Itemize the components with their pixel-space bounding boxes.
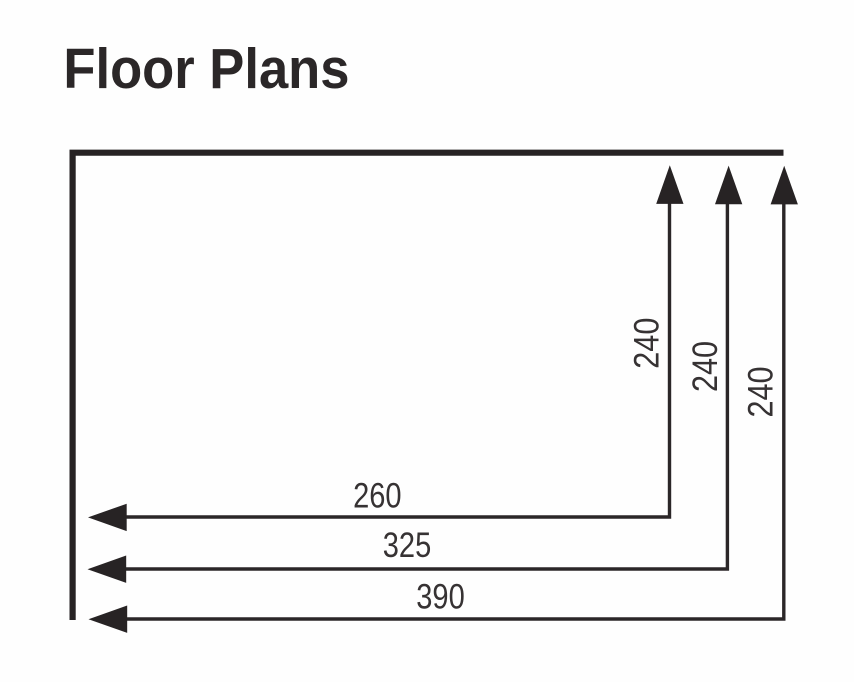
svg-text:260: 260 xyxy=(353,476,401,515)
svg-text:240: 240 xyxy=(627,318,666,369)
svg-text:240: 240 xyxy=(685,341,724,392)
svg-text:390: 390 xyxy=(416,577,464,616)
svg-text:Floor Plans: Floor Plans xyxy=(63,37,349,100)
svg-text:325: 325 xyxy=(383,525,431,564)
svg-text:240: 240 xyxy=(740,366,779,417)
